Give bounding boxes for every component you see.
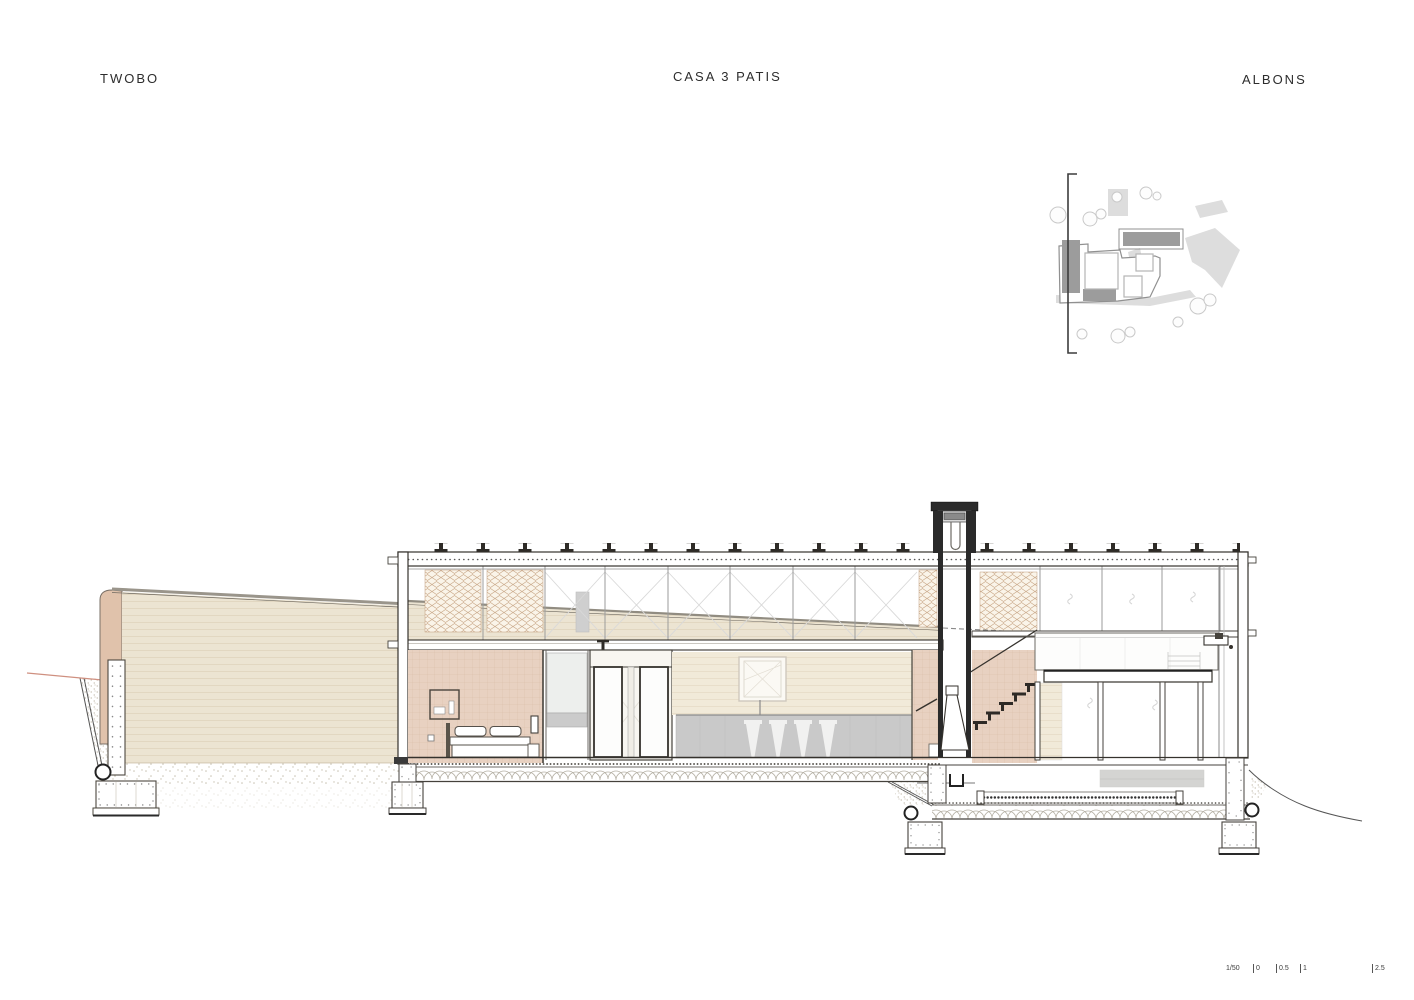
bench-block [1100,770,1204,787]
door-leaf [640,667,668,757]
mirror-panel [531,716,538,733]
sunken-level [917,770,1204,804]
scale-ratio: 1/50 [1226,964,1240,973]
kitchen-window [739,657,786,701]
drain-pipe [1246,804,1259,817]
door-leaf [594,667,622,757]
retaining-post [108,660,125,775]
site-plan [1050,174,1240,353]
roof-clips [412,543,932,552]
chimney-wall [938,553,943,757]
left-wall [398,552,408,764]
flue-pipe [951,522,960,550]
right-wall [1238,552,1248,758]
footing-left [93,781,159,816]
scale-tick-1: 1 [1300,964,1307,973]
chimney-wall [966,553,971,757]
kitchen-wall [672,652,912,715]
wall-outlet [428,735,434,741]
roof-clips [974,543,1240,552]
cupboard [1038,683,1062,760]
section-drawing [0,0,1414,1000]
drain-pipe [905,807,918,820]
ceiling-beam [398,640,943,650]
drain-pipe [96,765,111,780]
sheet: TWOBO CASA 3 PATIS ALBONS [0,0,1414,1000]
floors-foundations [389,758,1362,855]
fireplace-hood [941,686,969,750]
scale-tick-0: 0 [1253,964,1260,973]
scale-tick-25: 2.5 [1372,964,1385,973]
scale-bar: 1/50 0 0.5 1 2.5 [1216,960,1396,978]
floor-slab-basement [932,803,1250,819]
grade-line [1249,770,1362,821]
chimney-vent [944,513,965,520]
scale-tick-05: 0.5 [1276,964,1289,973]
duct-beyond [576,592,589,632]
fireplace-chimney [931,502,978,757]
chimney-cap [931,502,978,511]
terrain-right [1249,770,1362,821]
tile-wall-right [972,650,1037,763]
nightstand [528,744,539,757]
floor-drain-box [950,774,963,786]
glass-partition [546,650,588,760]
double-doors [590,650,672,760]
